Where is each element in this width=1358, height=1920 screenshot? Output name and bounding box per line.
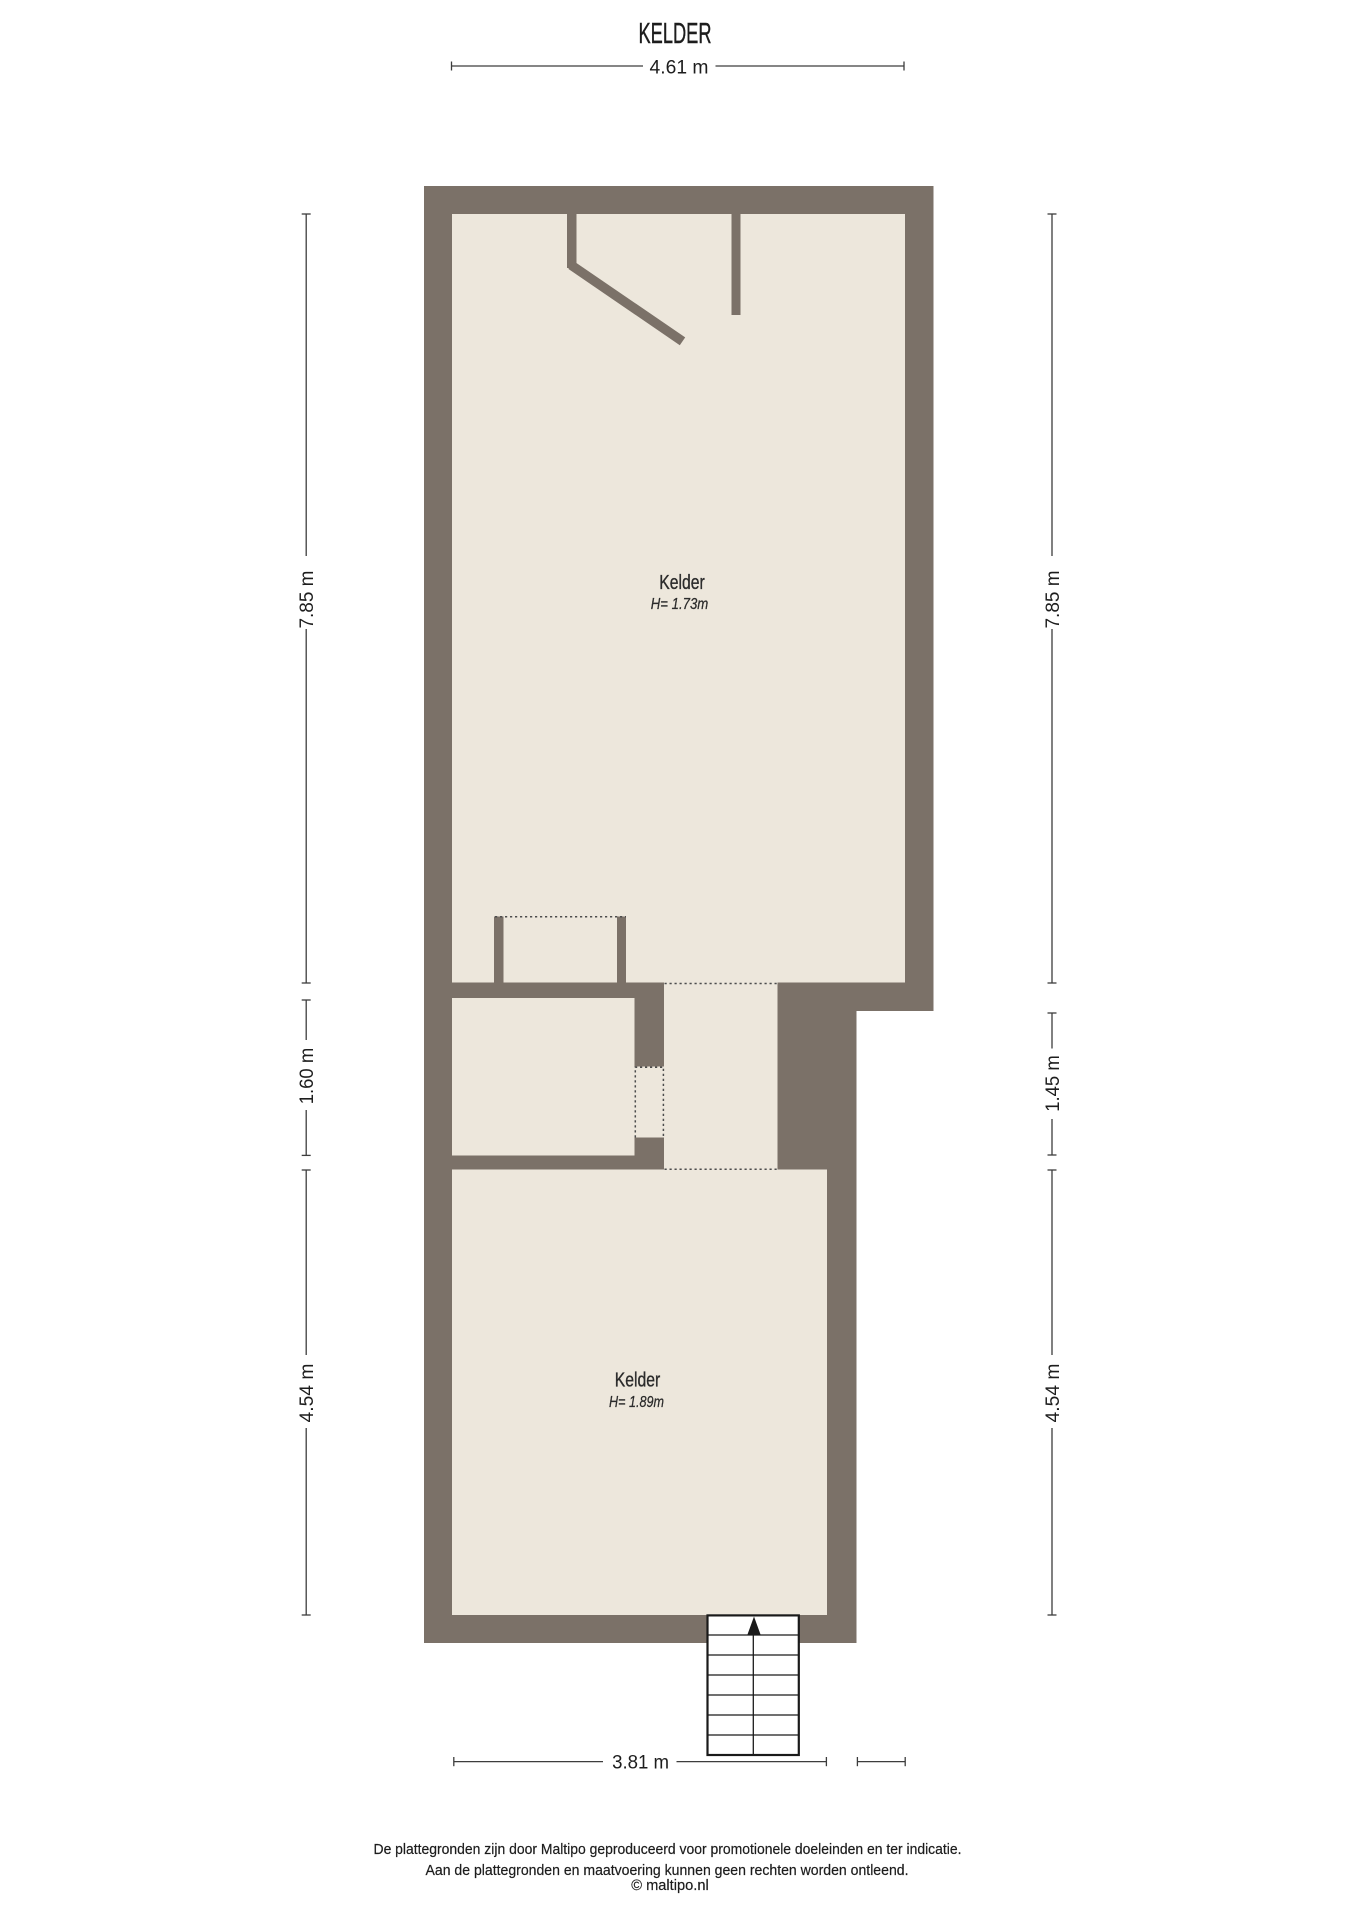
svg-text:7.85 m: 7.85 m — [296, 571, 318, 629]
svg-text:4.54 m: 4.54 m — [296, 1364, 318, 1423]
svg-text:De plattegronden zijn door Mal: De plattegronden zijn door Maltipo gepro… — [374, 1842, 962, 1858]
svg-text:© maltipo.nl: © maltipo.nl — [631, 1878, 709, 1894]
svg-text:Kelder: Kelder — [659, 571, 705, 594]
svg-text:4.54 m: 4.54 m — [1042, 1364, 1064, 1423]
svg-text:KELDER: KELDER — [639, 18, 712, 50]
svg-text:H= 1.73m: H= 1.73m — [651, 596, 709, 613]
svg-text:1.45 m: 1.45 m — [1042, 1055, 1064, 1112]
svg-text:7.85 m: 7.85 m — [1042, 571, 1064, 629]
svg-text:Kelder: Kelder — [615, 1369, 661, 1392]
svg-text:3.81 m: 3.81 m — [612, 1751, 669, 1773]
svg-text:Aan de plattegronden en maatvo: Aan de plattegronden en maatvoering kunn… — [426, 1863, 909, 1879]
svg-text:4.61 m: 4.61 m — [650, 56, 709, 78]
svg-text:1.60 m: 1.60 m — [296, 1048, 318, 1105]
svg-text:H= 1.89m: H= 1.89m — [609, 1394, 664, 1411]
